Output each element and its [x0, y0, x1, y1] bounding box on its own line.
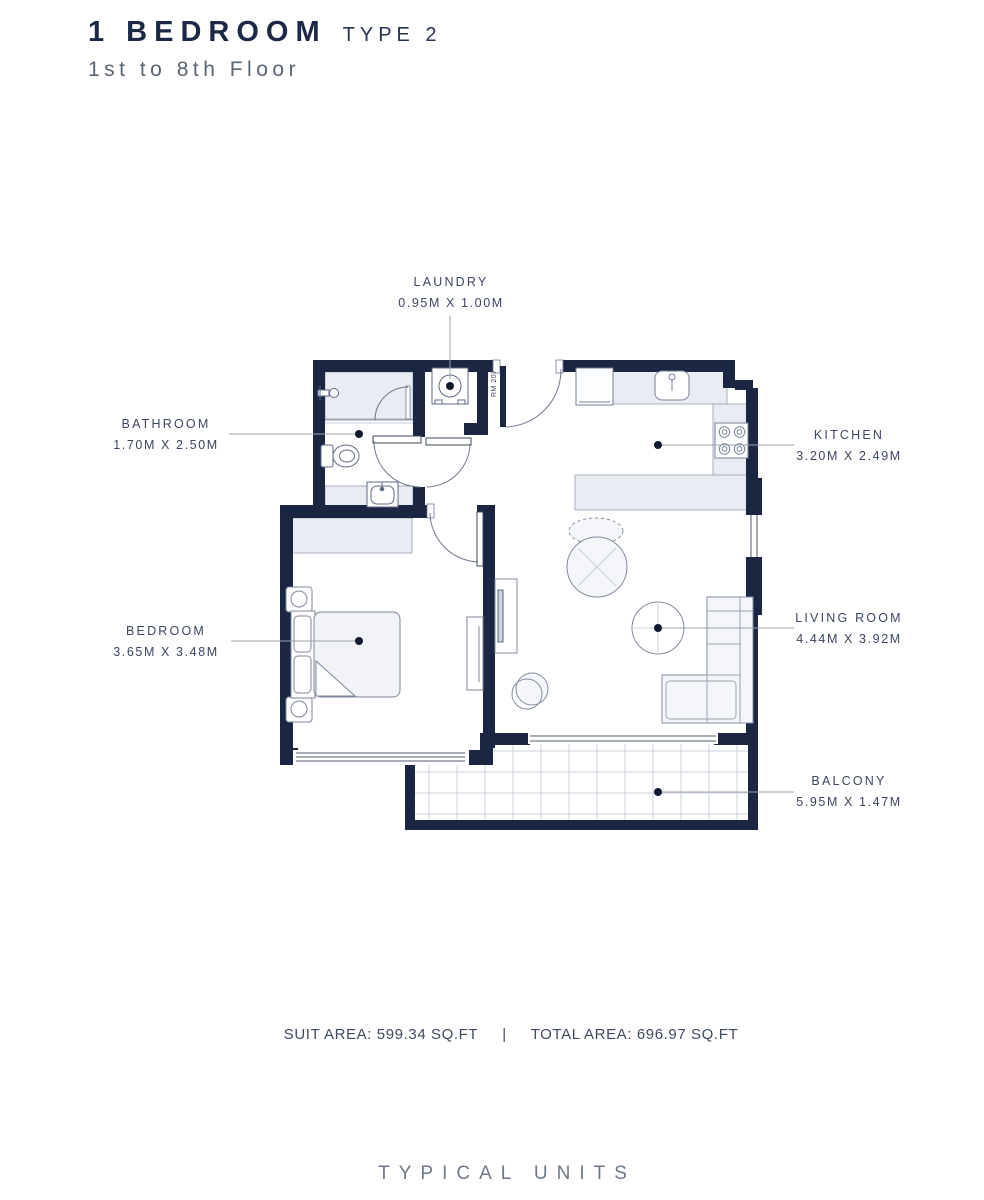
kitchen-dot — [654, 441, 662, 449]
wardrobe-icon — [283, 518, 412, 553]
entry-door-swing — [506, 369, 561, 427]
hall-door-leaf — [426, 438, 471, 445]
bedroom-door-leaf — [477, 512, 483, 566]
bedroom-label: BEDROOM 3.65M X 3.48M — [113, 621, 219, 663]
area-divider: | — [502, 1026, 507, 1043]
living-room-dot — [654, 624, 662, 632]
bathroom-dims: 1.70M X 2.50M — [113, 435, 219, 456]
nightstand-top-icon — [286, 587, 312, 612]
living-room-furniture — [495, 518, 753, 723]
balcony-dims: 5.95M X 1.47M — [796, 792, 902, 813]
kitchen-name: KITCHEN — [796, 425, 902, 446]
area-summary: SUIT AREA: 599.34 SQ.FT | TOTAL AREA: 69… — [284, 1026, 738, 1043]
total-area-text: TOTAL AREA: 696.97 SQ.FT — [531, 1026, 739, 1043]
bedroom-window — [293, 750, 469, 765]
laundry-name: LAUNDRY — [398, 272, 504, 293]
stove-icon — [715, 423, 748, 458]
toilet-icon — [321, 445, 359, 467]
kitchen-side-window — [746, 515, 762, 557]
bathroom-door-leaf — [373, 436, 421, 443]
bathroom-dot — [355, 430, 363, 438]
bedroom-door-swing — [430, 513, 478, 562]
bathroom-name: BATHROOM — [113, 414, 219, 435]
kitchen-sink-icon — [655, 371, 689, 400]
laundry-dot — [446, 382, 454, 390]
laundry-label: LAUNDRY 0.95M X 1.00M — [398, 272, 504, 314]
shower-door-leaf — [406, 386, 410, 419]
pouf-icon — [512, 673, 548, 709]
dining-table-icon — [567, 537, 627, 597]
entry-door-leaf — [500, 366, 506, 427]
living-room-name: LIVING ROOM — [795, 608, 903, 629]
entry-jamb-right — [556, 360, 563, 373]
living-room-dims: 4.44M X 3.92M — [795, 629, 903, 650]
unit-number-label: RM 207 — [491, 369, 498, 397]
kitchen-dims: 3.20M X 2.49M — [796, 446, 902, 467]
floor-plan-page: 1 BEDROOMTYPE 2 1st to 8th Floor — [0, 0, 984, 1200]
bedroom-name: BEDROOM — [113, 621, 219, 642]
dresser-icon — [467, 617, 483, 690]
bed-icon — [291, 611, 400, 698]
living-balcony-window — [528, 733, 718, 744]
laundry-dims: 0.95M X 1.00M — [398, 293, 504, 314]
balcony-label: BALCONY 5.95M X 1.47M — [796, 771, 902, 813]
fridge-icon — [576, 368, 613, 405]
suit-area-text: SUIT AREA: 599.34 SQ.FT — [284, 1026, 478, 1043]
typical-units-label: TYPICAL UNITS — [378, 1163, 636, 1185]
bedroom-furniture — [286, 587, 483, 722]
balcony-name: BALCONY — [796, 771, 902, 792]
bedroom-dot — [355, 637, 363, 645]
floor-plan-svg: RM 207 — [0, 0, 984, 1200]
hall-door-swing — [427, 444, 470, 487]
bathroom-sink-icon — [367, 482, 398, 507]
kitchen-counter-bottom — [575, 475, 750, 510]
tv-console-icon — [495, 579, 517, 653]
bedroom-dims: 3.65M X 3.48M — [113, 642, 219, 663]
kitchen-label: KITCHEN 3.20M X 2.49M — [796, 425, 902, 467]
balcony-dot — [654, 788, 662, 796]
nightstand-bottom-icon — [286, 697, 312, 722]
living-room-label: LIVING ROOM 4.44M X 3.92M — [795, 608, 903, 650]
bathroom-label: BATHROOM 1.70M X 2.50M — [113, 414, 219, 456]
bathroom-door-swing — [374, 441, 420, 487]
